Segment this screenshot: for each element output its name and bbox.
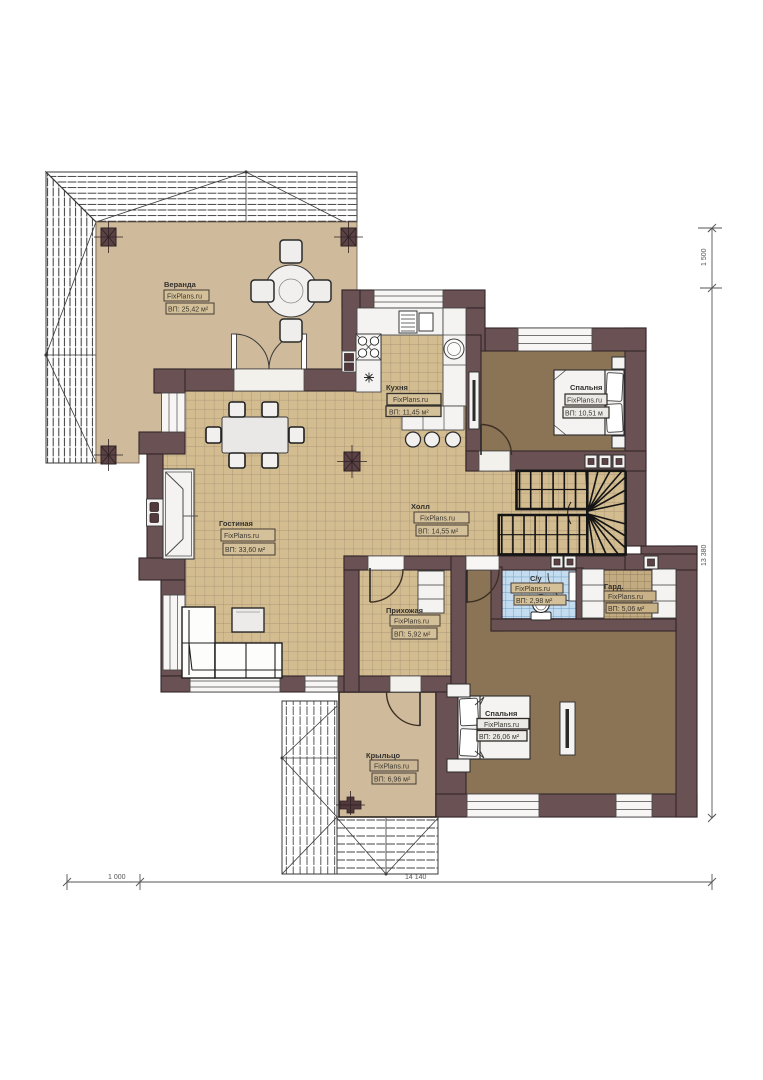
svg-text:Прихожая: Прихожая: [386, 606, 423, 615]
svg-text:ВП: 33,60 м²: ВП: 33,60 м²: [225, 547, 266, 554]
svg-text:Кухня: Кухня: [386, 383, 408, 392]
svg-text:FixPlans.ru: FixPlans.ru: [608, 594, 643, 601]
svg-text:ВП: 25,42 м²: ВП: 25,42 м²: [168, 307, 209, 314]
svg-text:ВП: 14,55 м²: ВП: 14,55 м²: [418, 529, 459, 536]
svg-text:Крыльцо: Крыльцо: [366, 751, 401, 760]
svg-text:FixPlans.ru: FixPlans.ru: [167, 294, 202, 301]
svg-text:FixPlans.ru: FixPlans.ru: [567, 398, 602, 405]
svg-text:ВП: 11,45 м²: ВП: 11,45 м²: [389, 409, 429, 416]
svg-text:FixPlans.ru: FixPlans.ru: [420, 516, 455, 523]
svg-text:Гард.: Гард.: [604, 582, 624, 591]
svg-text:FixPlans.ru: FixPlans.ru: [484, 722, 519, 729]
svg-text:FixPlans.ru: FixPlans.ru: [393, 397, 428, 404]
svg-text:С/у: С/у: [530, 574, 543, 583]
svg-text:Гостиная: Гостиная: [219, 519, 253, 528]
svg-text:13 380: 13 380: [701, 544, 708, 566]
svg-text:ВП: 6,96 м²: ВП: 6,96 м²: [374, 777, 411, 784]
svg-text:FixPlans.ru: FixPlans.ru: [515, 586, 550, 593]
svg-text:FixPlans.ru: FixPlans.ru: [394, 619, 429, 626]
svg-text:1 500: 1 500: [701, 248, 708, 266]
svg-text:Спальня: Спальня: [570, 383, 602, 392]
svg-text:Спальня: Спальня: [485, 709, 517, 718]
svg-text:Веранда: Веранда: [164, 280, 197, 289]
svg-text:FixPlans.ru: FixPlans.ru: [224, 533, 259, 540]
svg-text:ВП: 26,06 м²: ВП: 26,06 м²: [479, 734, 520, 741]
svg-text:1 000: 1 000: [108, 874, 126, 881]
svg-text:ВП: 10,51 м: ВП: 10,51 м: [565, 411, 603, 418]
svg-text:FixPlans.ru: FixPlans.ru: [374, 764, 409, 771]
svg-text:Холл: Холл: [411, 502, 430, 511]
svg-text:14 140: 14 140: [405, 874, 427, 881]
svg-text:ВП: 5,06 м²: ВП: 5,06 м²: [608, 606, 645, 613]
svg-text:ВП: 2,98 м²: ВП: 2,98 м²: [516, 598, 553, 605]
svg-text:ВП: 5,92 м²: ВП: 5,92 м²: [394, 632, 431, 639]
